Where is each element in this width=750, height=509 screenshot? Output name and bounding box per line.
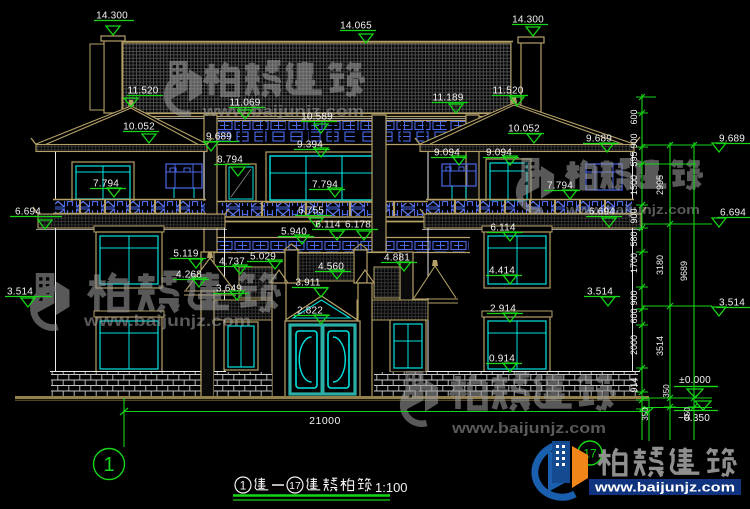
svg-text:9.394: 9.394 — [297, 140, 323, 151]
svg-text:17: 17 — [289, 480, 301, 492]
svg-text:595: 595 — [629, 151, 639, 166]
svg-text:14.065: 14.065 — [340, 21, 372, 32]
svg-text:3180: 3180 — [655, 255, 665, 275]
svg-text:580: 580 — [629, 231, 639, 246]
svg-text:4.737: 4.737 — [219, 257, 245, 268]
svg-text:6.755: 6.755 — [298, 206, 324, 217]
svg-text:1: 1 — [240, 479, 247, 493]
svg-text:11.189: 11.189 — [432, 93, 463, 104]
svg-text:9.689: 9.689 — [206, 132, 232, 143]
svg-text:2000: 2000 — [629, 335, 639, 355]
svg-text:900: 900 — [629, 290, 639, 305]
svg-text:8.794: 8.794 — [217, 155, 243, 166]
svg-text:4.268: 4.268 — [176, 270, 202, 281]
svg-text:900: 900 — [629, 208, 639, 223]
svg-text:6.178: 6.178 — [345, 220, 371, 231]
svg-text:6.694: 6.694 — [15, 207, 41, 218]
svg-text:www.baijunjz.com: www.baijunjz.com — [83, 313, 251, 330]
svg-text:350: 350 — [662, 384, 671, 398]
svg-text:5.940: 5.940 — [281, 227, 307, 238]
svg-text:1: 1 — [103, 454, 114, 476]
svg-text:www.baijunjz.com: www.baijunjz.com — [202, 103, 364, 120]
svg-text:5.029: 5.029 — [250, 252, 276, 263]
svg-text:350: 350 — [683, 407, 692, 421]
svg-text:10.589: 10.589 — [301, 112, 333, 123]
svg-text:600: 600 — [629, 109, 639, 124]
svg-text:600: 600 — [629, 308, 639, 323]
svg-text:6.114: 6.114 — [315, 220, 341, 231]
svg-text:3.514: 3.514 — [587, 287, 613, 298]
svg-text:9.094: 9.094 — [486, 148, 512, 159]
svg-text:10.052: 10.052 — [123, 122, 155, 133]
svg-text:9.094: 9.094 — [434, 148, 460, 159]
svg-text:1:100: 1:100 — [375, 480, 408, 495]
svg-text:11.520: 11.520 — [492, 86, 523, 97]
svg-text:11.069: 11.069 — [229, 98, 260, 109]
svg-text:5.119: 5.119 — [173, 249, 199, 260]
svg-text:www.baijunjz.com: www.baijunjz.com — [594, 481, 735, 495]
svg-text:2995: 2995 — [655, 175, 665, 195]
svg-text:3.514: 3.514 — [7, 287, 33, 298]
svg-text:3.649: 3.649 — [216, 284, 242, 295]
svg-text:1700: 1700 — [629, 253, 639, 273]
svg-text:14.300: 14.300 — [512, 15, 544, 26]
svg-text:www.baijunjz.com: www.baijunjz.com — [451, 420, 606, 437]
svg-text:1500: 1500 — [629, 175, 639, 195]
svg-text:21000: 21000 — [309, 415, 341, 427]
svg-text:3.911: 3.911 — [295, 278, 321, 289]
svg-text:10.052: 10.052 — [508, 124, 540, 135]
svg-text:6.694: 6.694 — [589, 207, 615, 218]
svg-text:7.794: 7.794 — [312, 180, 338, 191]
svg-text:6.694: 6.694 — [720, 208, 746, 219]
svg-text:3514: 3514 — [655, 336, 665, 356]
svg-text:9689: 9689 — [679, 261, 689, 281]
svg-text:14.300: 14.300 — [96, 11, 128, 22]
svg-text:±0.000: ±0.000 — [679, 375, 711, 386]
svg-text:914: 914 — [629, 377, 639, 392]
svg-text:11.520: 11.520 — [127, 86, 158, 97]
svg-text:900: 900 — [629, 133, 639, 148]
